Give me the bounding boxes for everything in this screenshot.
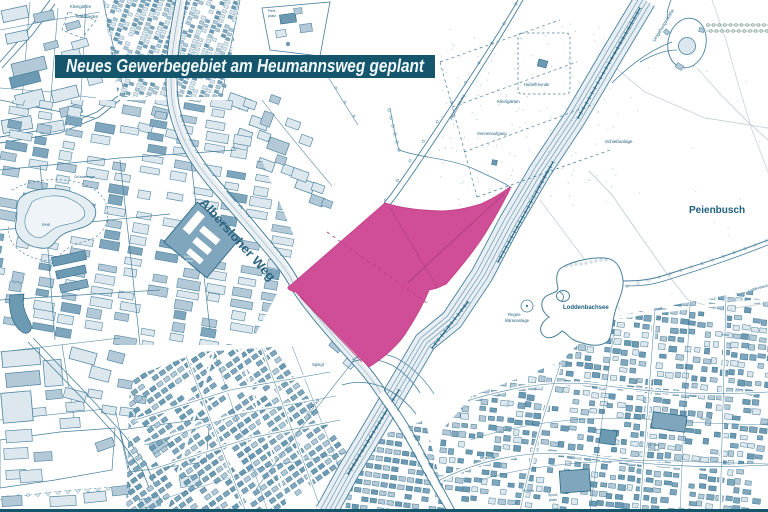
svg-text:Kita: Kita — [722, 332, 730, 337]
svg-text:Schule: Schule — [522, 488, 535, 493]
svg-text:Loddenbachsee: Loddenbachsee — [563, 305, 609, 311]
svg-text:Schießanlage: Schießanlage — [605, 139, 633, 144]
svg-text:Waldfrieden: Waldfrieden — [76, 14, 99, 19]
svg-text:platz: platz — [549, 498, 557, 502]
svg-text:Grünanlage: Grünanlage — [74, 174, 96, 179]
svg-text:Kloster: Kloster — [648, 448, 661, 452]
svg-text:Museum: Museum — [480, 455, 496, 460]
svg-text:Kleingärten: Kleingärten — [70, 4, 92, 9]
svg-text:Reit-: Reit- — [268, 9, 277, 13]
svg-text:Schule: Schule — [700, 416, 713, 421]
svg-text:Kleingärten: Kleingärten — [497, 99, 520, 104]
svg-text:platz: platz — [268, 14, 276, 18]
svg-text:Sport-: Sport- — [548, 493, 559, 497]
svg-text:klärananlage: klärananlage — [505, 318, 530, 323]
svg-text:RHB: RHB — [42, 223, 50, 227]
svg-text:Hußelfreunde: Hußelfreunde — [524, 82, 550, 87]
svg-text:Spiegl: Spiegl — [312, 362, 324, 367]
svg-text:werke: werke — [184, 259, 193, 263]
svg-text:Regen-: Regen- — [508, 312, 522, 317]
svg-text:Sonnenaufgang: Sonnenaufgang — [477, 131, 507, 136]
svg-text:Neues Gewerbegebiet am Heumann: Neues Gewerbegebiet am Heumannsweg gepla… — [66, 56, 425, 76]
svg-text:Peienbusch: Peienbusch — [689, 205, 745, 216]
svg-text:St. Ida: St. Ida — [648, 443, 660, 447]
